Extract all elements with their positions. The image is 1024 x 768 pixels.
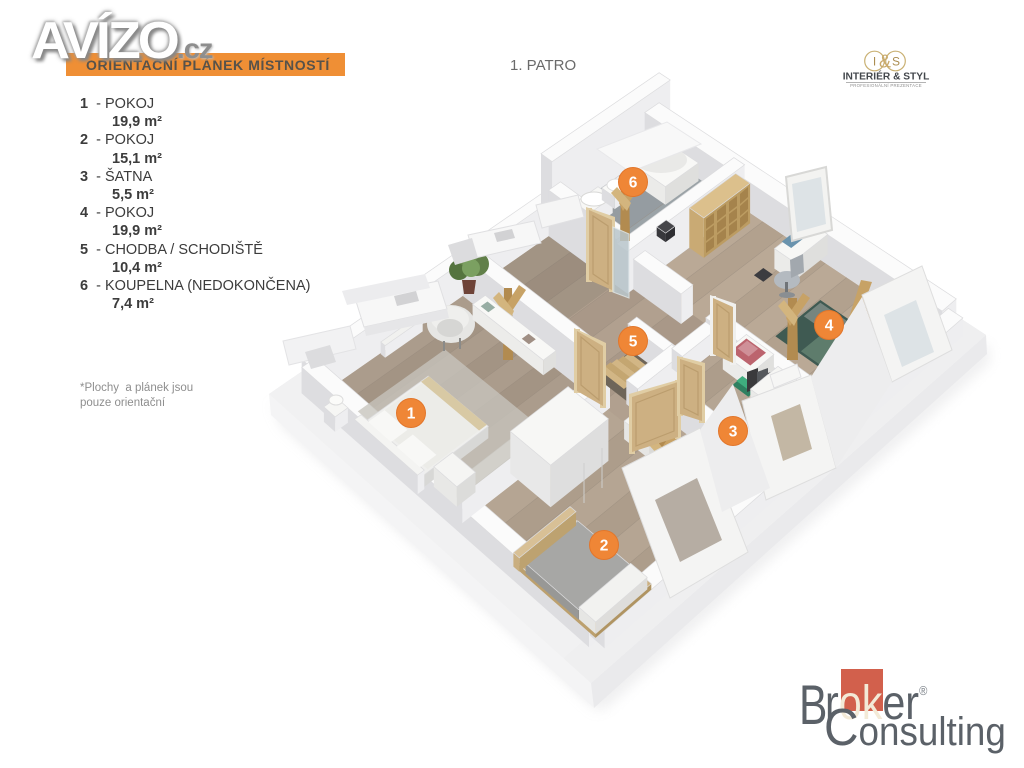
svg-text:6: 6 (629, 175, 638, 192)
svg-text:PROFESIONÁLNÍ PREZENTACE: PROFESIONÁLNÍ PREZENTACE (850, 83, 922, 88)
svg-text:I: I (873, 55, 876, 69)
svg-text:&: & (879, 52, 891, 72)
svg-text:5: 5 (629, 334, 638, 351)
svg-text:2: 2 (600, 538, 609, 555)
svg-text:INTERIÉR & STYL: INTERIÉR & STYL (843, 70, 930, 83)
svg-text:1: 1 (407, 406, 416, 423)
svg-text:S: S (892, 55, 900, 69)
svg-text:4: 4 (825, 318, 834, 335)
svg-text:3: 3 (729, 424, 738, 441)
